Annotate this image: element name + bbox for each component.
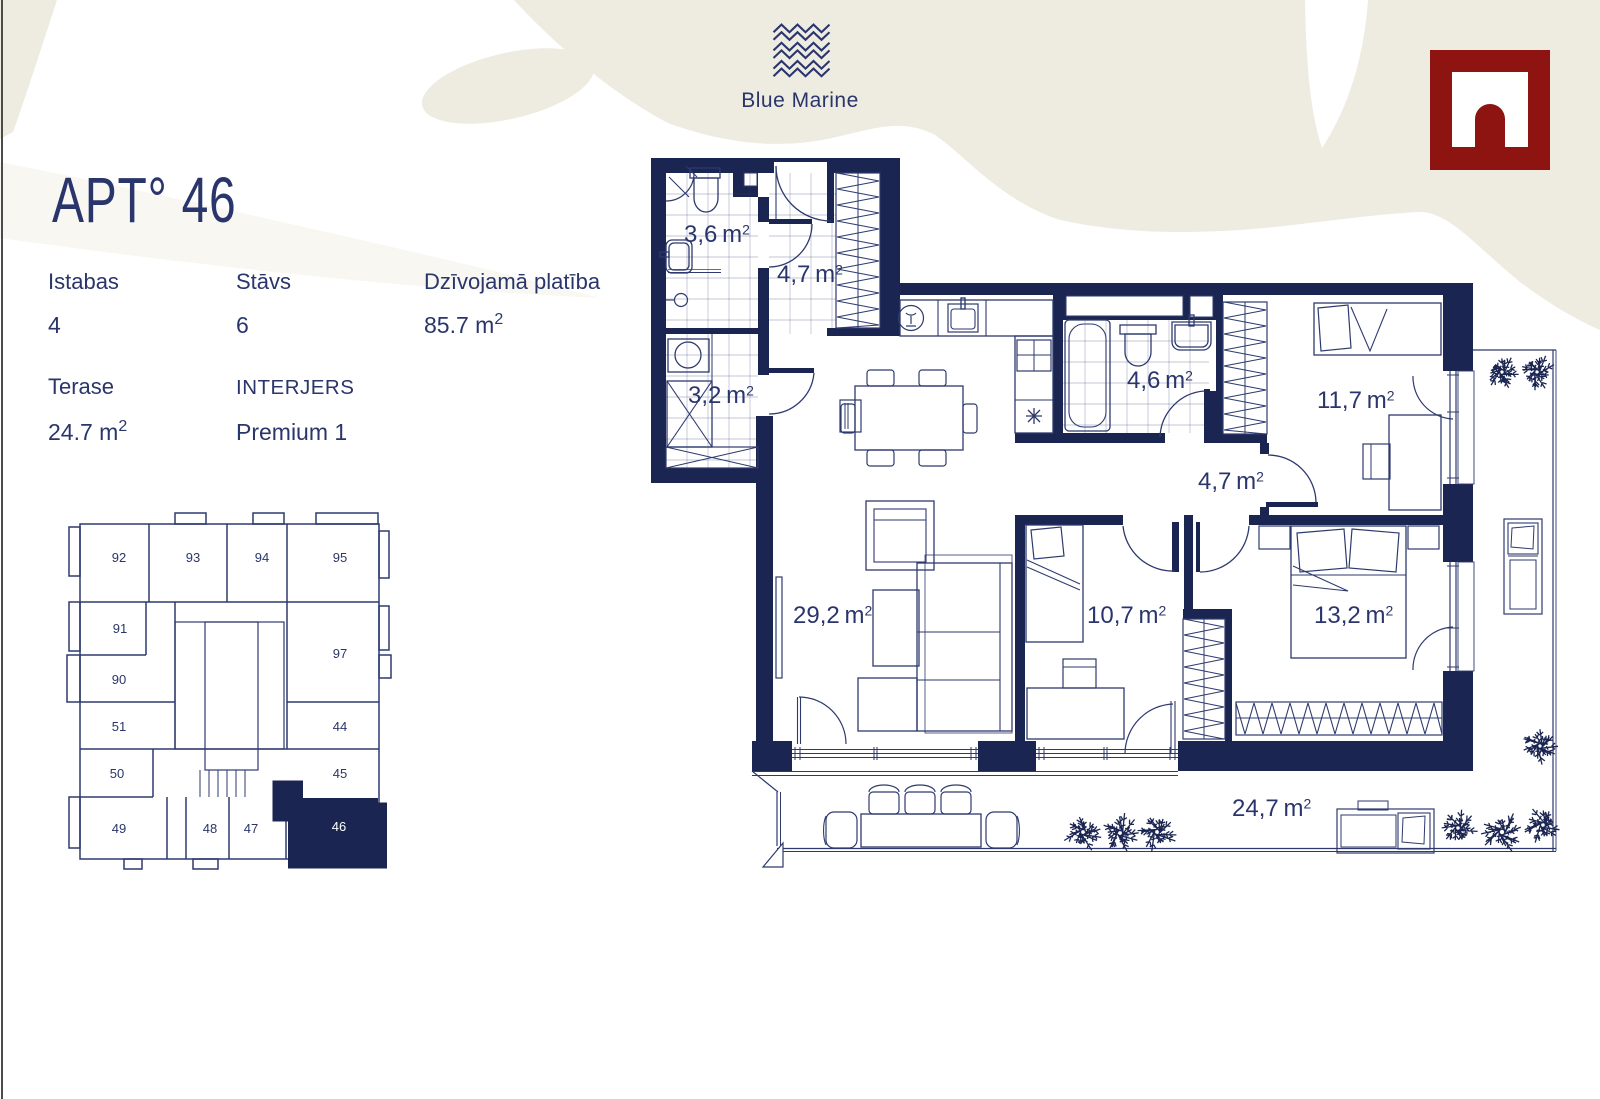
svg-text:47: 47 [244,821,258,836]
svg-text:Dzīvojamā platība: Dzīvojamā platība [424,269,601,294]
svg-text:3,2 m2: 3,2 m2 [688,382,754,409]
svg-text:90: 90 [112,672,126,687]
svg-text:4,7 m2: 4,7 m2 [777,261,843,288]
svg-text:11,7 m2: 11,7 m2 [1317,387,1395,414]
svg-text:4,6 m2: 4,6 m2 [1127,367,1193,394]
svg-text:4,7 m2: 4,7 m2 [1198,468,1264,495]
svg-text:44: 44 [333,719,347,734]
svg-text:51: 51 [112,719,126,734]
svg-text:95: 95 [333,550,347,565]
svg-text:Terase: Terase [48,374,114,399]
svg-text:85.7 m2: 85.7 m2 [424,311,503,338]
svg-text:6: 6 [236,312,249,338]
svg-text:Blue Marine: Blue Marine [741,89,859,112]
svg-text:92: 92 [112,550,126,565]
svg-text:24,7 m2: 24,7 m2 [1232,795,1312,822]
svg-text:97: 97 [333,646,347,661]
svg-text:Stāvs: Stāvs [236,269,291,294]
svg-text:91: 91 [113,621,127,636]
svg-text:29,2 m2: 29,2 m2 [793,602,873,629]
svg-text:48: 48 [203,821,217,836]
svg-text:APT° 46: APT° 46 [52,164,236,235]
svg-text:3,6 m2: 3,6 m2 [684,221,750,248]
svg-text:94: 94 [255,550,269,565]
svg-text:24.7 m2: 24.7 m2 [48,418,127,445]
svg-text:10,7 m2: 10,7 m2 [1087,602,1167,629]
svg-text:13,2 m2: 13,2 m2 [1314,602,1394,629]
svg-text:49: 49 [112,821,126,836]
svg-text:Premium 1: Premium 1 [236,419,347,445]
svg-text:46: 46 [332,819,346,834]
svg-text:Istabas: Istabas [48,269,119,294]
svg-text:INTERJERS: INTERJERS [236,376,354,399]
svg-text:50: 50 [110,766,124,781]
svg-text:93: 93 [186,550,200,565]
svg-text:45: 45 [333,766,347,781]
svg-text:4: 4 [48,312,61,338]
